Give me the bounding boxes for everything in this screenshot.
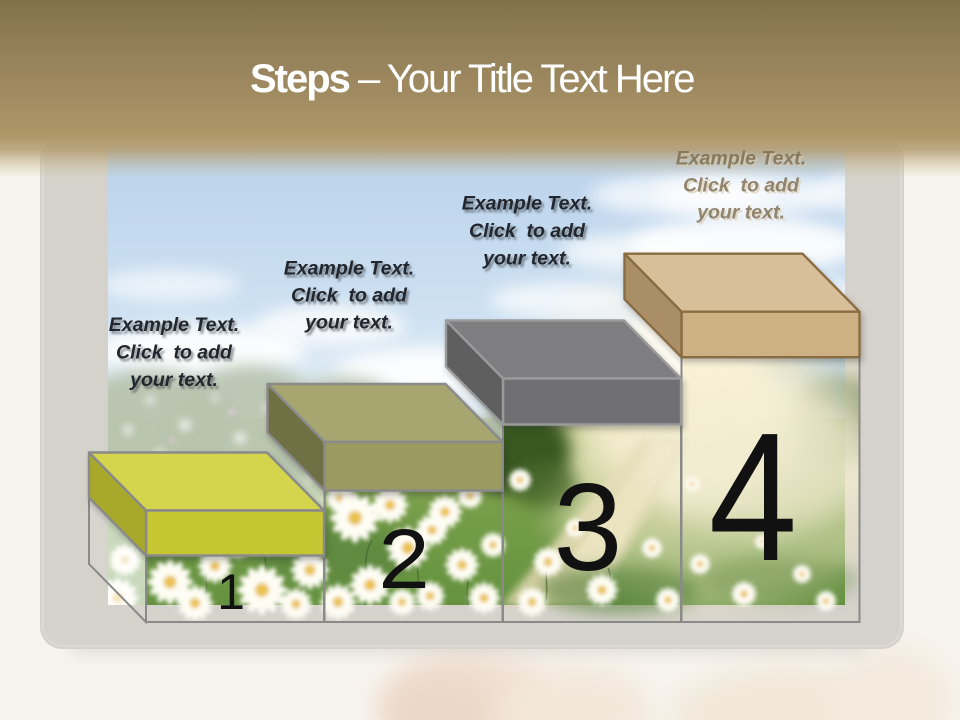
svg-text:Example Text.: Example Text. (676, 148, 806, 170)
svg-text:1: 1 (217, 564, 245, 620)
svg-text:4: 4 (709, 396, 798, 600)
svg-text:Example Text.: Example Text. (462, 193, 592, 215)
svg-text:Click to add: Click to add (116, 342, 233, 364)
svg-text:your text.: your text. (129, 369, 218, 391)
svg-text:Click to add: Click to add (469, 220, 586, 242)
svg-text:Click to add: Click to add (291, 285, 408, 307)
svg-text:Click to add: Click to add (683, 175, 800, 197)
svg-text:3: 3 (554, 459, 623, 597)
svg-text:2: 2 (378, 512, 429, 606)
svg-text:Example Text.: Example Text. (109, 314, 239, 336)
svg-text:Steps – Your Title Text Here: Steps – Your Title Text Here (250, 57, 694, 101)
svg-text:Example Text.: Example Text. (284, 258, 414, 280)
svg-text:your text.: your text. (304, 312, 393, 334)
svg-text:your text.: your text. (482, 248, 571, 270)
svg-text:your text.: your text. (696, 202, 785, 224)
